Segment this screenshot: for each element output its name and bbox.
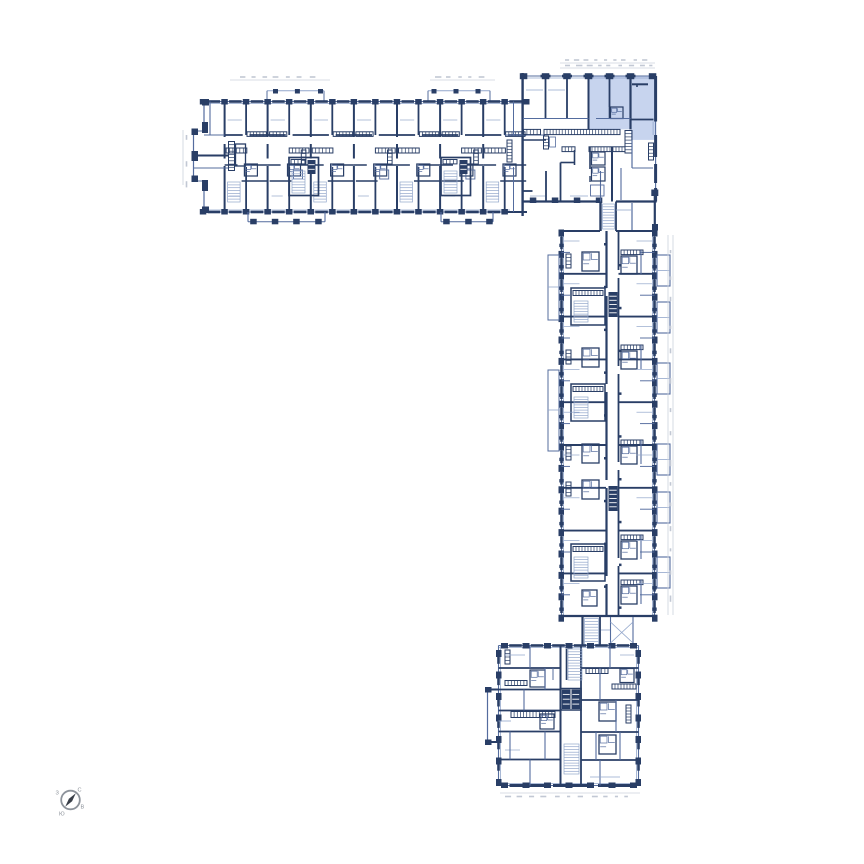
svg-text:В: В [81, 805, 85, 811]
svg-text:Ю: Ю [59, 812, 65, 818]
svg-text:С: С [78, 788, 82, 794]
